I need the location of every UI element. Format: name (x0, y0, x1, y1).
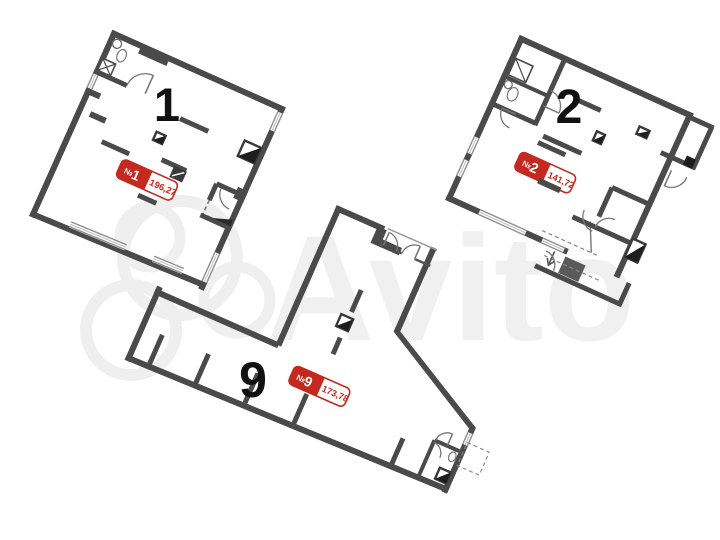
svg-text:9: 9 (239, 352, 267, 408)
svg-text:1: 1 (154, 78, 180, 131)
svg-text:2: 2 (556, 81, 583, 134)
